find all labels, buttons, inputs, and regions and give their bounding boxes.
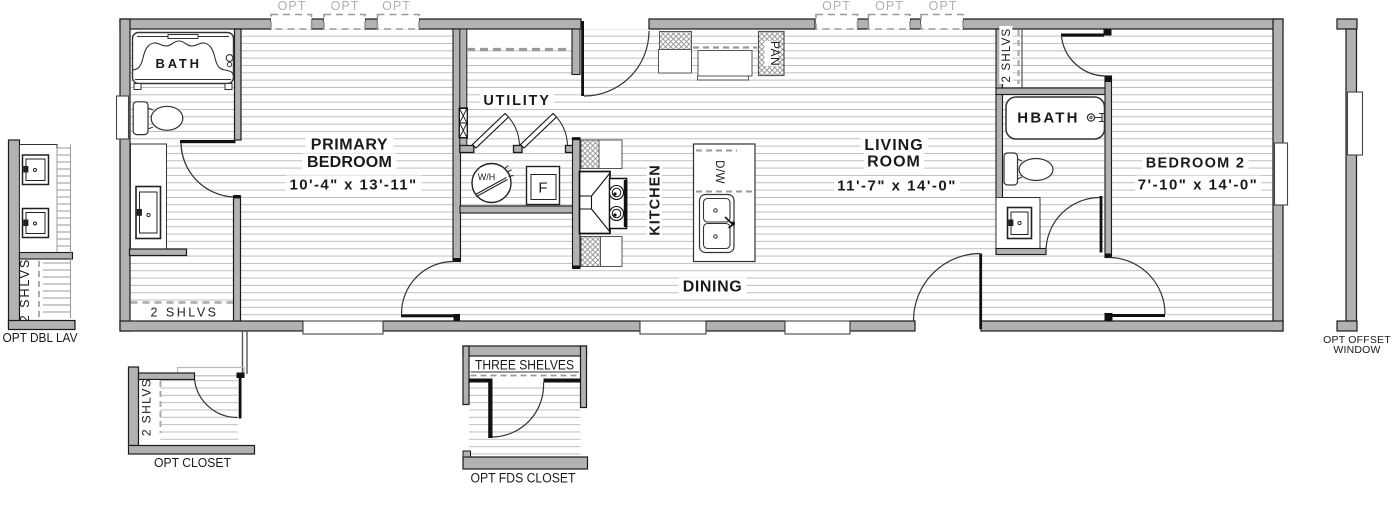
svg-text:PAN: PAN	[768, 41, 782, 66]
svg-text:BEDROOM 2: BEDROOM 2	[1146, 156, 1246, 172]
svg-text:11'-7" x 14'-0": 11'-7" x 14'-0"	[837, 178, 957, 195]
svg-text:WINDOW: WINDOW	[1333, 344, 1380, 356]
svg-text:10'-4" x 13'-11": 10'-4" x 13'-11"	[290, 176, 418, 193]
svg-text:ROOM: ROOM	[867, 153, 921, 170]
svg-text:OPT: OPT	[822, 0, 851, 13]
svg-text:F: F	[538, 180, 547, 197]
svg-text:DINING: DINING	[683, 279, 743, 296]
svg-text:OPT FDS CLOSET: OPT FDS CLOSET	[471, 471, 576, 486]
svg-text:PRIMARY: PRIMARY	[311, 136, 388, 153]
svg-text:BEDROOM: BEDROOM	[307, 154, 392, 171]
svg-text:THREE SHELVES: THREE SHELVES	[475, 358, 574, 373]
svg-text:LIVING: LIVING	[864, 137, 923, 154]
svg-text:2 SHLVS: 2 SHLVS	[151, 306, 219, 320]
svg-text:OPT: OPT	[382, 0, 411, 13]
svg-text:2 SHLVS: 2 SHLVS	[18, 258, 32, 323]
svg-text:2 SHLVS: 2 SHLVS	[140, 378, 154, 436]
svg-text:BATH: BATH	[156, 56, 202, 71]
svg-text:D/W: D/W	[713, 160, 725, 184]
svg-text:KITCHEN: KITCHEN	[648, 164, 664, 235]
svg-text:OPT DBL LAV: OPT DBL LAV	[3, 331, 79, 345]
svg-text:UTILITY: UTILITY	[483, 93, 550, 109]
svg-text:OPT: OPT	[331, 0, 360, 13]
svg-text:OPT CLOSET: OPT CLOSET	[154, 455, 231, 470]
svg-text:OPT: OPT	[929, 0, 958, 13]
svg-text:7'-10" x 14'-0": 7'-10" x 14'-0"	[1138, 177, 1259, 194]
svg-text:2 SHLVS: 2 SHLVS	[1001, 28, 1013, 83]
svg-text:OPT: OPT	[278, 0, 307, 13]
svg-text:HBATH: HBATH	[1017, 110, 1079, 127]
svg-text:OPT: OPT	[875, 0, 904, 13]
svg-text:W/H: W/H	[478, 172, 496, 182]
